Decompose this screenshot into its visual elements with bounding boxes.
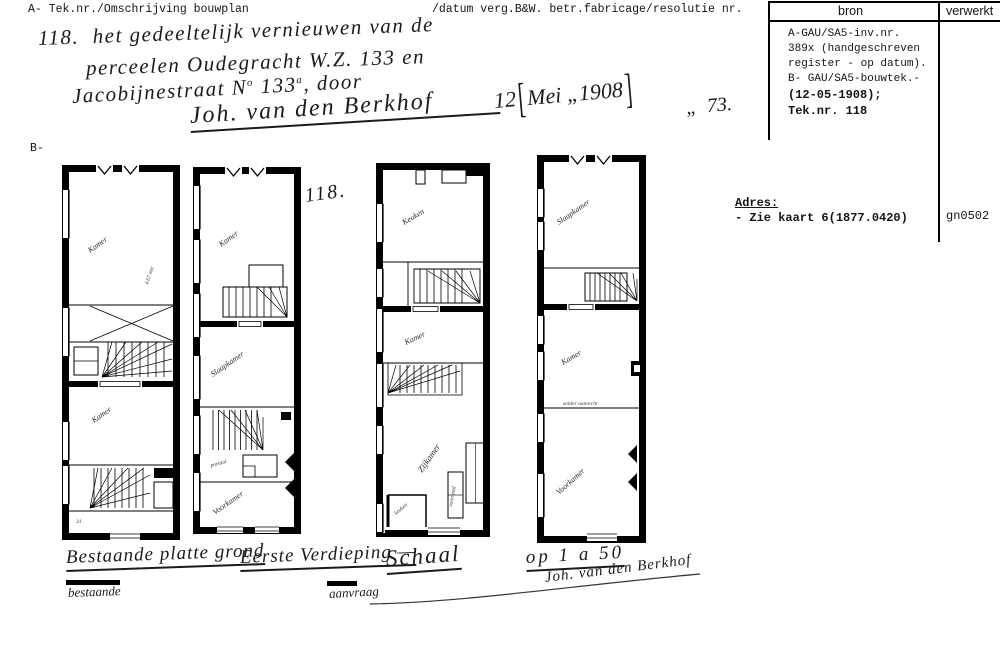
- floor-plan-3: Keuken Kamer Zijkamer voorraad keuken: [376, 163, 490, 537]
- handwritten-date: 12[Mei „1908]: [493, 76, 635, 114]
- date-day: 12: [493, 86, 517, 113]
- archive-code: gn0502: [946, 209, 989, 223]
- adres-label: Adres:: [735, 196, 778, 210]
- line3-text: 133: [253, 72, 297, 98]
- table-rule-bron-left: [768, 1, 770, 140]
- bron-line: B- GAU/SA5-bouwtek.-: [788, 73, 920, 85]
- line3-text: , door: [303, 69, 363, 96]
- room-note: 31.: [75, 519, 83, 525]
- table-rule-header-bottom: [768, 20, 1000, 22]
- bron-line: register - op datum).: [788, 58, 927, 70]
- plan-number: 118.: [303, 179, 347, 208]
- floor-plan-1: Kamer 4.67 mtr. Kamer 31. Zijkamer 3.45 …: [62, 165, 180, 540]
- header-middle: /datum verg.B&W. betr.fabricage/resoluti…: [432, 3, 743, 16]
- header-left: A- Tek.nr./Omschrijving bouwplan: [28, 3, 249, 16]
- adres-value: - Zie kaart 6(1877.0420): [735, 211, 908, 225]
- bron-line: Tek.nr. 118: [788, 104, 867, 118]
- caption-bestaande-plattegrond: Bestaande platte grond: [66, 540, 265, 572]
- margin-label-b: B-: [30, 142, 44, 155]
- table-rule-top: [768, 1, 1000, 3]
- column-header-verwerkt: verwerkt: [946, 4, 993, 18]
- table-rule-verwerkt-left: [938, 1, 940, 242]
- column-header-bron: bron: [838, 4, 863, 18]
- floor-plan-2: Kamer Slaapkamer portaal Voorkamer: [193, 167, 301, 534]
- floor-plan-4: Slaapkamer Kamer zolder aanrecht Voorkam…: [537, 155, 646, 543]
- date-month-year: Mei „1908: [526, 77, 624, 110]
- bracket-close: ]: [623, 64, 635, 114]
- handwritten-number-73: „ 73.: [685, 93, 733, 120]
- bracket-open: [: [516, 74, 528, 124]
- bron-line: (12-05-1908);: [788, 88, 882, 102]
- scanned-bouwplan-document: A- Tek.nr./Omschrijving bouwplan /datum …: [0, 0, 1000, 647]
- room-note: zolder aanrecht: [562, 401, 598, 407]
- caption-sub-bestaande: bestaande: [68, 583, 121, 601]
- bron-line: 389x (handgeschreven: [788, 43, 920, 55]
- bron-line: A-GAU/SA5-inv.nr.: [788, 28, 900, 40]
